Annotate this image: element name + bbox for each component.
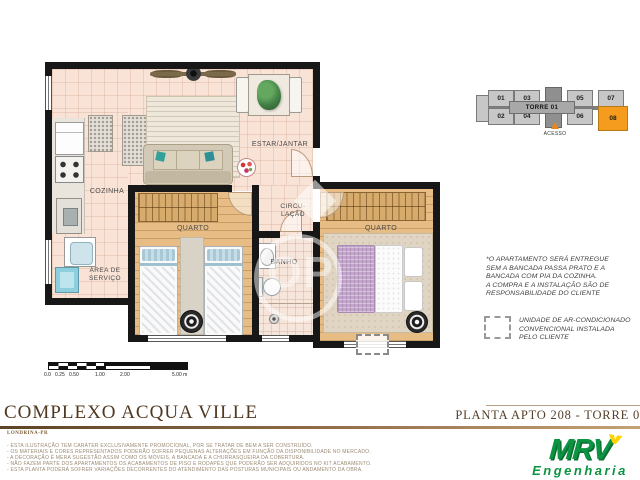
note-line: SEM A BANCADA PASSA PRATO E A [486,265,640,274]
window [45,76,52,110]
project-title: COMPLEXO ACQUA VILLE [4,402,424,424]
bed1-blanket [142,267,175,333]
title-rule [0,426,640,429]
window [45,240,52,284]
room-label-circulacao: CIRCU- LAÇÃO [273,203,313,218]
double-bed-pillow-1 [404,247,423,277]
scale-label: 0.25 [55,372,65,378]
mrv-tagline: Engenharia [524,463,636,478]
floor-speaker-bedroom2 [406,311,428,333]
dining-chair-right [289,77,302,113]
bed1-fold [140,263,177,266]
keyplan-tower-label: TORRE 01 [509,101,575,114]
wall [313,182,440,189]
sheet-title: PLANTA APTO 208 - TORRE 0 [440,408,640,423]
shower-drain [269,314,279,324]
keyplan-access-label: ACESSO [535,131,575,137]
scale-label: 5.00 m [172,372,187,378]
sofa-back [145,171,231,183]
bed2-pillow [207,249,240,261]
floor-plan-sheet: COZINHA ESTAR/JANTAR CIRCU- LAÇÃO BANHO … [0,0,640,480]
wall [313,222,320,348]
delivery-note: *O APARTAMENTO SERÁ ENTREGUE SEM A BANCA… [486,256,640,299]
double-bed-duvet [375,245,403,313]
room-label-quarto-2: QUARTO [351,225,411,233]
mrv-logo: MRV Engenharia [524,435,636,479]
disclaimer-line: - ESTA PLANTA PODERÁ SOFRER VARIAÇÕES DE… [7,467,487,473]
note-line: *O APARTAMENTO SERÁ ENTREGUE [486,256,640,265]
single-bed-2 [204,246,243,336]
circulacao-line2: LAÇÃO [273,211,313,219]
sheet-top-line [486,405,640,406]
wall [433,182,440,348]
sofa-pillow-teal-2 [204,151,214,161]
scale-label: 1.00 [95,372,105,378]
ac-legend-swatch [484,316,511,339]
room-label-estar-jantar: ESTAR/JANTAR [240,141,320,149]
area-servico-line1: ÁREA DE [80,267,130,275]
window [262,335,289,342]
keyplan-access-arrow [551,122,559,129]
shower-divider [255,303,313,304]
table-plant [257,80,281,110]
area-servico-line2: SERVIÇO [80,275,130,283]
stove [55,156,84,183]
bed2-fold [205,263,242,266]
room-label-cozinha: COZINHA [77,188,137,196]
bed2-blanket [207,267,240,333]
ac-unit-dashed-box [356,334,389,355]
wall [45,298,135,305]
room-label-area-servico: ÁREA DE SERVIÇO [80,267,130,282]
note-line: A COMPRA E A INSTALAÇÃO SÃO DE [486,282,640,291]
note-line: BANCADA COM PIA DA COZINHA. [486,273,640,282]
washing-machine [64,237,96,267]
keyplan-unit-07: 07 [598,90,624,107]
wall [45,62,320,69]
room-label-banho: BANHO [264,259,304,267]
double-bed-purple-blanket [337,245,375,313]
sofa [143,144,233,185]
floor-speaker-bedroom1 [180,310,203,333]
flower-side-table [237,158,256,177]
disclaimer-block: - ESTA ILUSTRAÇÃO TEM CARÁTER EXCLUSIVAM… [7,443,487,473]
keyplan-unit-08-highlighted: 08 [598,106,628,131]
kitchen-sink [56,198,82,234]
wall [313,62,320,148]
ac-legend-line: PELO CLIENTE [519,334,640,343]
wardrobe-bedroom1 [138,193,218,222]
circulacao-line1: CIRCU- [273,203,313,211]
note-line: RESPONSABILIDADE DO CLIENTE [486,290,640,299]
mrv-wordmark: MRV [523,436,637,464]
ac-legend-line: UNIDADE DE AR-CONDICIONADO [519,317,640,326]
ac-legend-text: UNIDADE DE AR-CONDICIONADO CONVENCIONAL … [519,317,640,343]
wall [128,185,232,192]
room-label-quarto-1: QUARTO [163,225,223,233]
location-label: LONDRINA-PR [7,431,127,436]
sofa-pillow-teal-1 [155,151,166,162]
pass-through-counter [88,115,113,152]
scale-label: 0.0 [44,372,51,378]
wall [128,185,135,342]
laundry-tank [55,267,79,293]
fridge [55,122,84,155]
scale-bar-checker [48,362,105,370]
wall [252,231,280,238]
toilet-bowl [263,278,281,296]
single-bed-1 [139,246,178,336]
scale-bar-solid [105,362,188,370]
wall [252,185,259,342]
ac-legend-line: CONVENCIONAL INSTALADA [519,326,640,335]
bed1-pillow [142,249,175,261]
double-bed-pillow-2 [404,281,423,311]
scale-label: 0.50 [69,372,79,378]
scale-label: 2.00 [120,372,130,378]
window [148,335,226,342]
